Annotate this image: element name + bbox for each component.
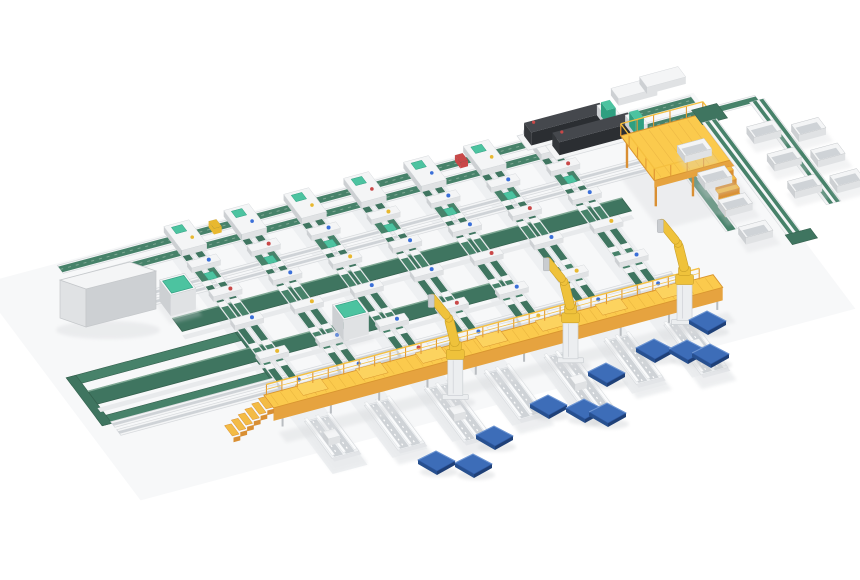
robot-wrist (657, 220, 663, 233)
robot-pedestal (677, 284, 692, 321)
bridge-indicator (386, 210, 390, 214)
station-indicator (250, 219, 254, 223)
sorting-system-3d-render (0, 0, 860, 580)
bridge-indicator (250, 315, 254, 319)
station-indicator (490, 155, 494, 159)
bridge-indicator (506, 177, 510, 181)
gripper (543, 258, 549, 271)
machine-indicator (532, 121, 535, 124)
robot-wrist (428, 294, 434, 307)
bridge-indicator (566, 161, 570, 165)
gripper (428, 294, 434, 307)
robot-pedestal (563, 322, 578, 359)
station-indicator (310, 203, 314, 207)
bridge-indicator (228, 286, 232, 290)
bridge-indicator (395, 317, 399, 321)
bridge-indicator (490, 251, 494, 255)
robot-wrist (543, 258, 549, 271)
bridge-indicator (348, 254, 352, 258)
machine-indicator (560, 130, 563, 133)
station-indicator (430, 171, 434, 175)
bridge-indicator (430, 267, 434, 271)
robot-pedestal (448, 358, 463, 395)
bridge-indicator (207, 258, 211, 262)
station-indicator (190, 235, 194, 239)
gripper (657, 220, 663, 233)
bridge-indicator (408, 238, 412, 242)
station-indicator (370, 187, 374, 191)
pallet (455, 454, 495, 480)
pallet (530, 395, 570, 421)
bridge-indicator (468, 222, 472, 226)
bridge-indicator (370, 283, 374, 287)
bridge-indicator (446, 193, 450, 197)
bridge-indicator (588, 190, 592, 194)
bridge-indicator (549, 235, 553, 239)
bridge-indicator (310, 299, 314, 303)
bridge-indicator (635, 253, 639, 257)
robot-swivel-base (562, 313, 580, 323)
bridge-indicator (528, 206, 532, 210)
bridge-indicator (267, 242, 271, 246)
bridge-indicator (455, 301, 459, 305)
robot-swivel-base (446, 349, 464, 359)
robot-swivel-base (676, 275, 694, 285)
bridge-indicator (575, 269, 579, 273)
render-canvas (0, 0, 860, 580)
bridge-indicator (288, 270, 292, 274)
cabinet-shadow (56, 321, 160, 339)
bridge-indicator (609, 219, 613, 223)
bridge-indicator (515, 285, 519, 289)
bridge-indicator (327, 226, 331, 230)
bridge-indicator (275, 349, 279, 353)
